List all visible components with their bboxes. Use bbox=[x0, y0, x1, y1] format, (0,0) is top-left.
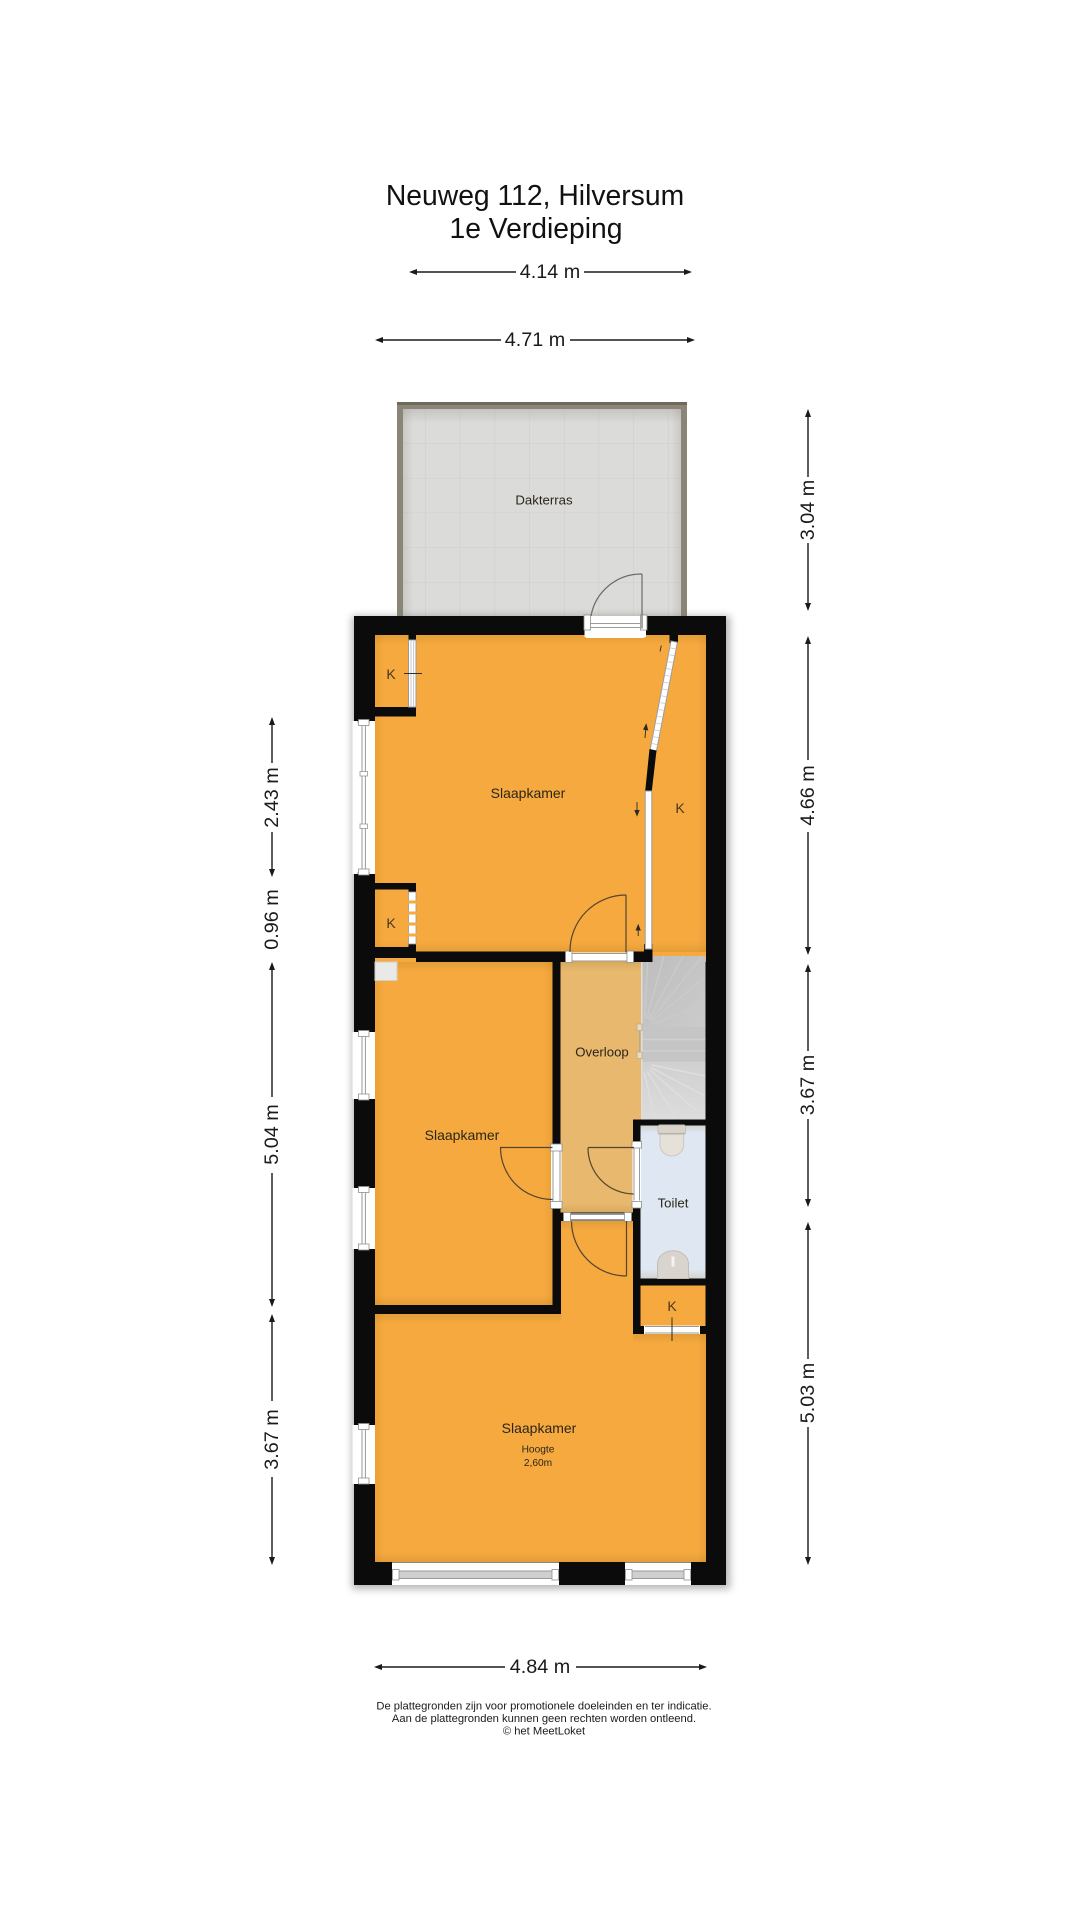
svg-text:4.71 m: 4.71 m bbox=[505, 329, 565, 351]
svg-text:Slaapkamer: Slaapkamer bbox=[502, 1420, 577, 1436]
svg-text:0.96 m: 0.96 m bbox=[261, 889, 283, 949]
svg-text:Slaapkamer: Slaapkamer bbox=[491, 785, 566, 801]
svg-text:3.04 m: 3.04 m bbox=[797, 480, 819, 540]
svg-text:1e Verdieping: 1e Verdieping bbox=[449, 212, 622, 244]
svg-text:Toilet: Toilet bbox=[658, 1196, 689, 1211]
svg-text:K: K bbox=[386, 666, 396, 682]
svg-text:K: K bbox=[386, 915, 396, 931]
svg-text:3.67 m: 3.67 m bbox=[797, 1055, 819, 1115]
svg-text:3.67 m: 3.67 m bbox=[261, 1409, 283, 1469]
svg-text:K: K bbox=[675, 800, 685, 816]
svg-text:5.04 m: 5.04 m bbox=[261, 1104, 283, 1164]
svg-text:Aan de plattegronden kunnen ge: Aan de plattegronden kunnen geen rechten… bbox=[392, 1713, 696, 1725]
svg-text:© het MeetLoket: © het MeetLoket bbox=[503, 1726, 586, 1738]
svg-text:Dakterras: Dakterras bbox=[515, 493, 573, 508]
svg-text:2,60m: 2,60m bbox=[524, 1458, 552, 1469]
svg-text:De plattegronden zijn voor pro: De plattegronden zijn voor promotionele … bbox=[376, 1701, 711, 1713]
svg-text:Overloop: Overloop bbox=[575, 1045, 629, 1060]
svg-text:Hoogte: Hoogte bbox=[522, 1445, 555, 1456]
svg-text:K: K bbox=[667, 1298, 677, 1314]
svg-text:Slaapkamer: Slaapkamer bbox=[425, 1127, 500, 1143]
svg-text:4.14 m: 4.14 m bbox=[520, 261, 580, 283]
svg-text:4.66 m: 4.66 m bbox=[797, 765, 819, 825]
svg-text:4.84 m: 4.84 m bbox=[510, 1656, 570, 1678]
svg-text:5.03 m: 5.03 m bbox=[797, 1363, 819, 1423]
svg-text:Neuweg 112, Hilversum: Neuweg 112, Hilversum bbox=[386, 179, 684, 211]
svg-text:2.43 m: 2.43 m bbox=[261, 767, 283, 827]
